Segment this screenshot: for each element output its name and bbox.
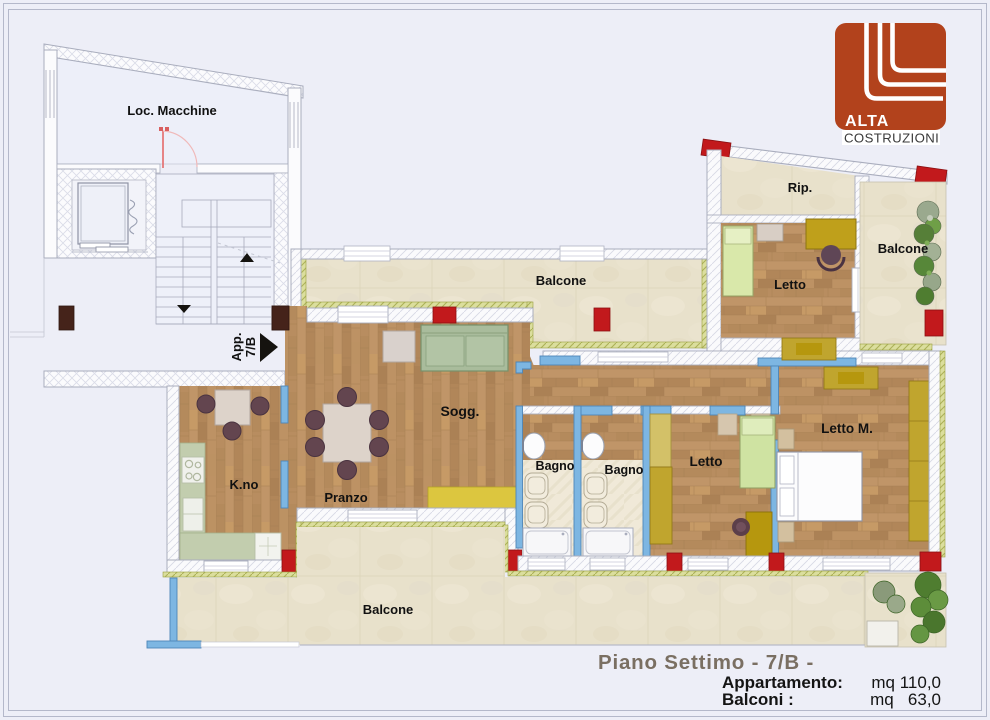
svg-text:Rip.: Rip. [788,180,813,195]
svg-text:K.no: K.no [230,477,259,492]
svg-text:mq 63,0: mq 63,0 [870,690,941,709]
svg-text:Letto: Letto [774,277,806,292]
svg-text:Piano Settimo - 7/B -: Piano Settimo - 7/B - [598,651,814,674]
svg-text:Bagno: Bagno [536,459,575,473]
svg-text:Bagno: Bagno [605,463,644,477]
svg-text:Pranzo: Pranzo [324,490,367,505]
svg-text:Sogg.: Sogg. [441,403,480,419]
svg-text:App.: App. [229,333,244,362]
svg-text:Balcone: Balcone [363,602,414,617]
svg-text:Loc. Macchine: Loc. Macchine [127,103,217,118]
svg-text:Balconi :: Balconi : [722,690,794,709]
svg-text:ALTA: ALTA [845,113,889,130]
svg-text:Balcone: Balcone [878,241,929,256]
svg-text:Balcone: Balcone [536,273,587,288]
svg-text:COSTRUZIONI: COSTRUZIONI [844,131,939,146]
svg-text:Letto M.: Letto M. [821,421,873,436]
svg-text:7/B: 7/B [243,337,258,357]
svg-text:Letto: Letto [690,454,723,469]
